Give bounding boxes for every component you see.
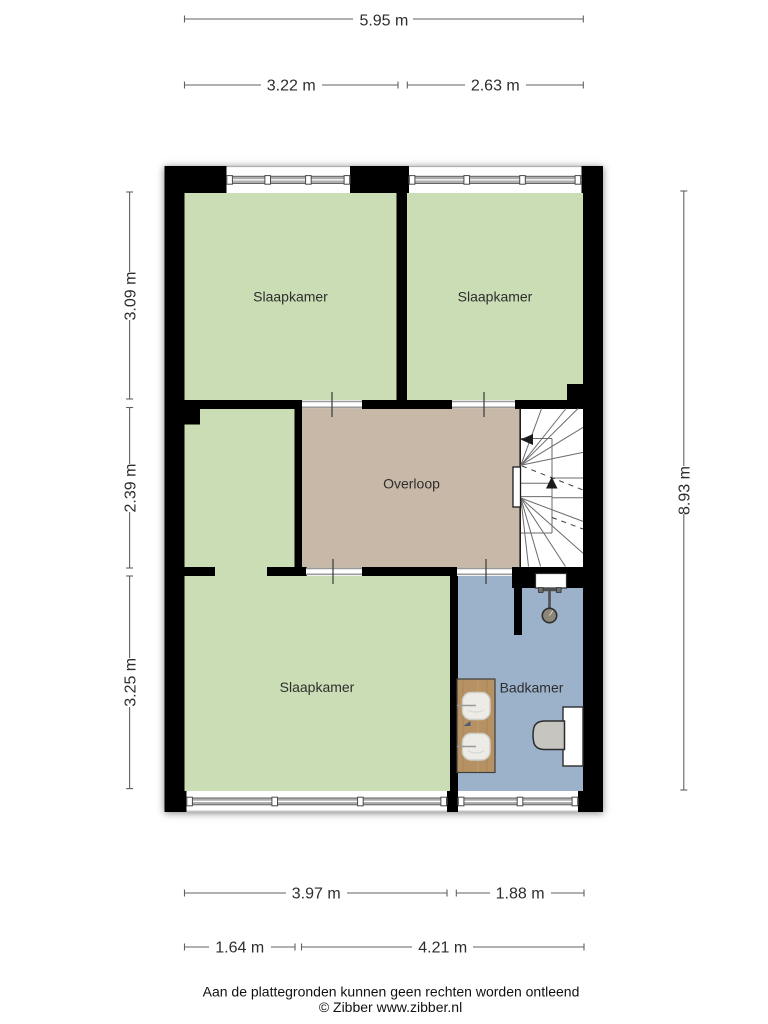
svg-text:Slaapkamer: Slaapkamer bbox=[458, 289, 533, 305]
svg-text:3.25 m: 3.25 m bbox=[122, 658, 139, 707]
svg-text:1.64 m: 1.64 m bbox=[215, 940, 264, 957]
svg-text:3.97 m: 3.97 m bbox=[292, 886, 341, 903]
svg-text:Aan de plattegronden kunnen ge: Aan de plattegronden kunnen geen rechten… bbox=[203, 984, 580, 1000]
svg-text:5.95 m: 5.95 m bbox=[359, 13, 408, 30]
svg-text:8.93 m: 8.93 m bbox=[677, 466, 694, 515]
svg-text:Slaapkamer: Slaapkamer bbox=[280, 679, 355, 695]
svg-text:Badkamer: Badkamer bbox=[500, 680, 564, 696]
svg-text:4.21 m: 4.21 m bbox=[418, 940, 467, 957]
svg-text:3.09 m: 3.09 m bbox=[122, 272, 139, 321]
svg-text:3.22 m: 3.22 m bbox=[267, 78, 316, 95]
svg-text:2.63 m: 2.63 m bbox=[471, 78, 520, 95]
svg-text:© Zibber www.zibber.nl: © Zibber www.zibber.nl bbox=[319, 999, 462, 1015]
svg-text:Slaapkamer: Slaapkamer bbox=[253, 289, 328, 305]
svg-text:2.39 m: 2.39 m bbox=[122, 464, 139, 513]
svg-text:Overloop: Overloop bbox=[383, 476, 440, 492]
svg-text:1.88 m: 1.88 m bbox=[496, 886, 545, 903]
